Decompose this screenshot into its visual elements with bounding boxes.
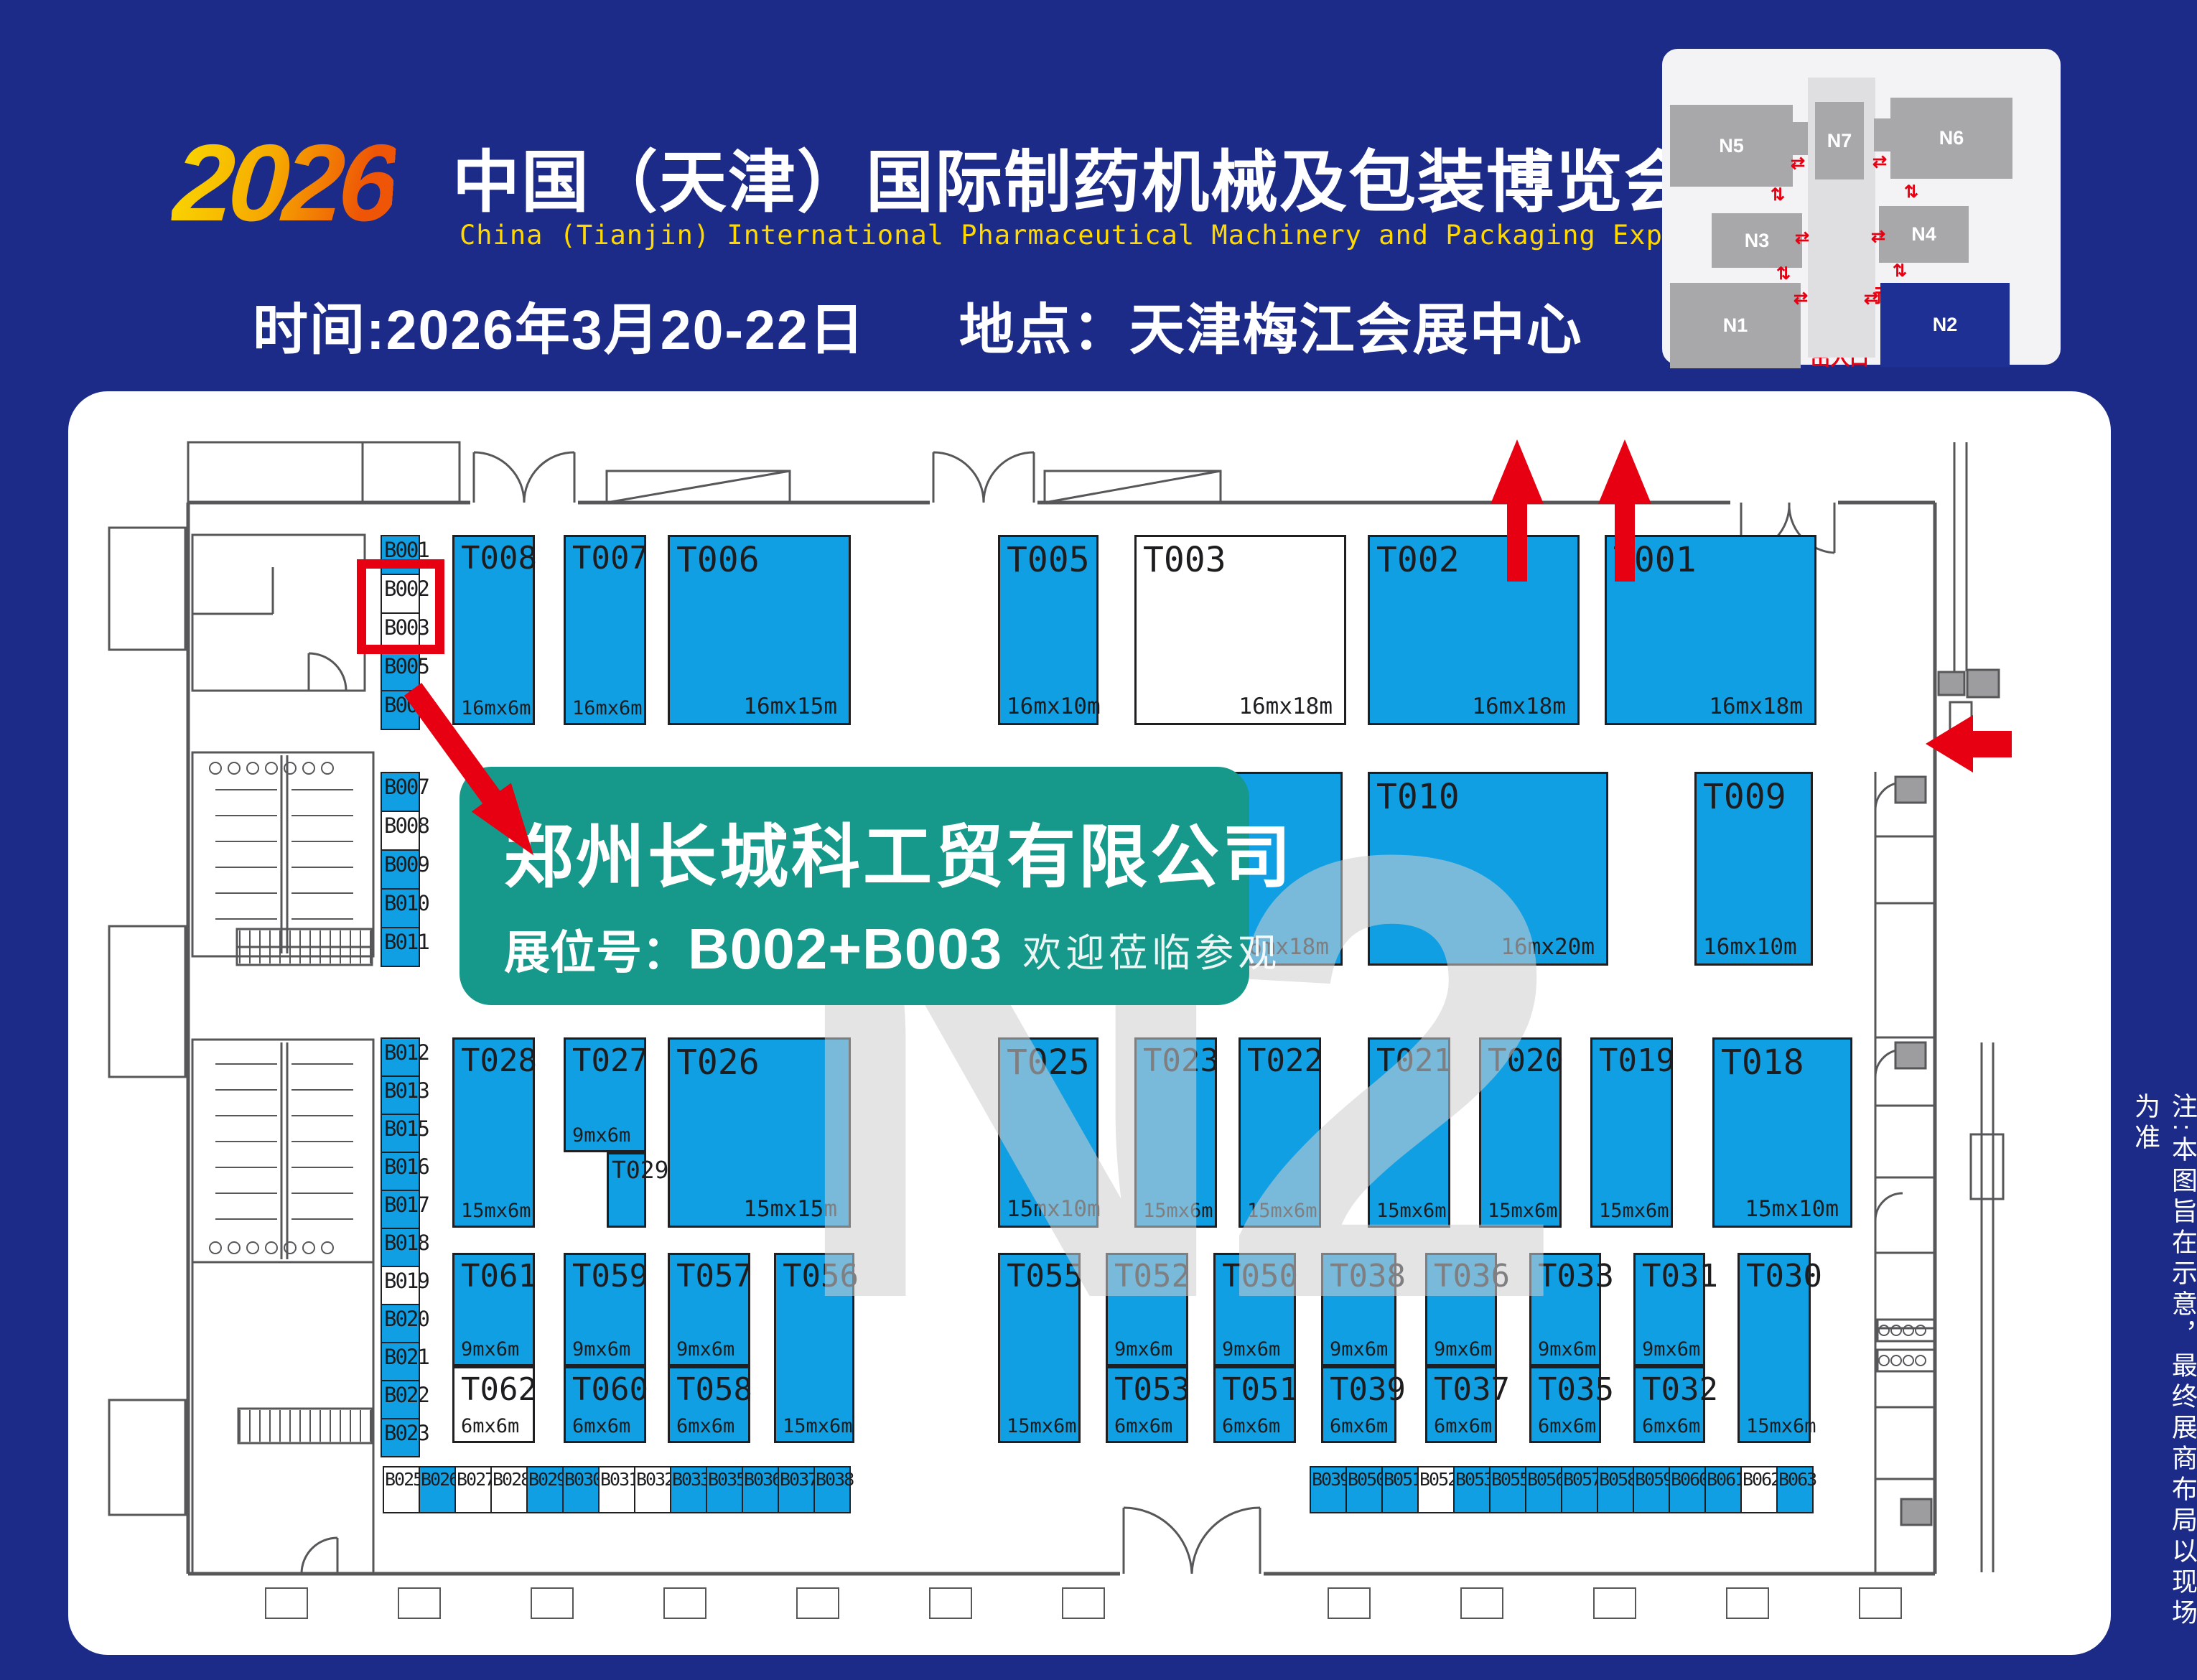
pointer-arrow-icon bbox=[393, 675, 553, 869]
left-arrow-icon bbox=[1926, 715, 2012, 773]
up-arrow-icon bbox=[1598, 439, 1651, 582]
red-arrows-layer bbox=[0, 0, 2197, 1680]
up-arrow-icon bbox=[1491, 439, 1544, 582]
expo-floorplan-poster: 2026 中国（天津）国际制药机械及包装博览会 China (Tianjin) … bbox=[0, 0, 2197, 1680]
